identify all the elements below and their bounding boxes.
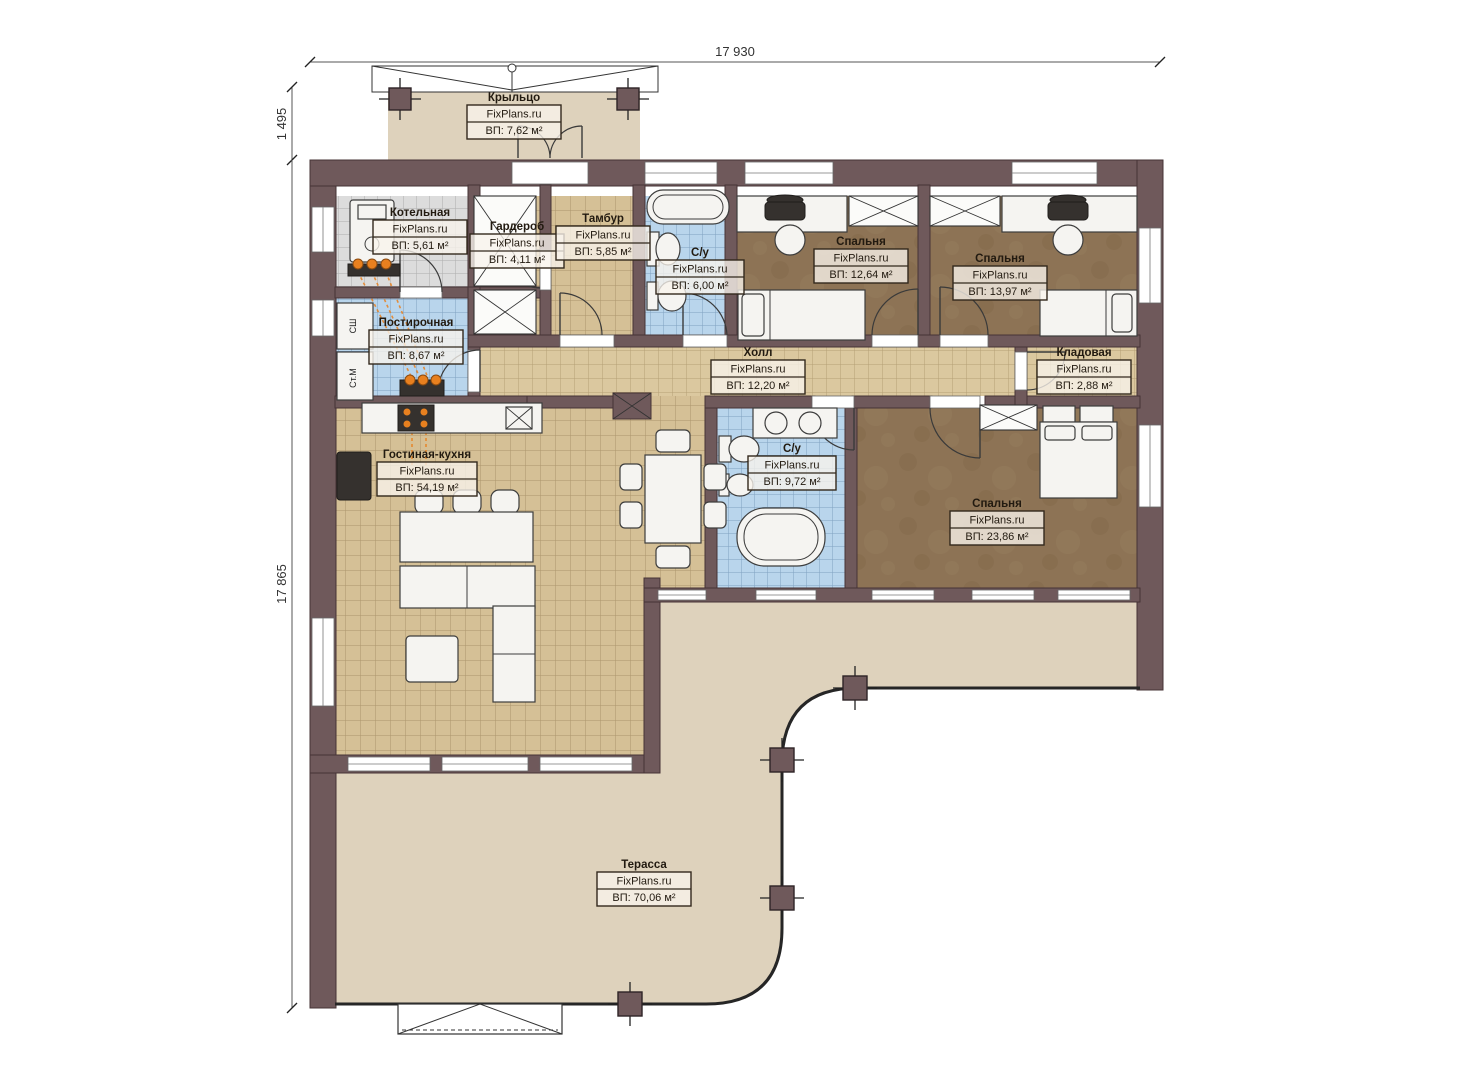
room-area: ВП: 4,11 м² [489, 254, 546, 266]
desk-chair-2 [1053, 225, 1083, 255]
bathtub-2 [737, 508, 825, 566]
room-area: ВП: 5,85 м² [574, 246, 631, 258]
window-top-1 [645, 162, 717, 184]
room-name: Тамбур [582, 213, 624, 225]
watermark: FixPlans.ru [730, 364, 785, 376]
washer-label: Ст.М [348, 368, 358, 388]
watermark: FixPlans.ru [972, 270, 1027, 282]
watermark: FixPlans.ru [1056, 364, 1111, 376]
window-terrace-4 [972, 590, 1034, 600]
window-left-1 [312, 207, 334, 252]
window-living-south-3 [540, 757, 632, 771]
watermark: FixPlans.ru [969, 515, 1024, 527]
bedroom1-wardrobe [849, 196, 918, 226]
bathtub-1 [647, 190, 729, 224]
entry-door-gap [512, 162, 588, 184]
window-top-2 [745, 162, 833, 184]
kitchen-counter [362, 403, 542, 433]
watermark: FixPlans.ru [489, 238, 544, 250]
watermark: FixPlans.ru [392, 224, 447, 236]
window-terrace-1 [658, 590, 706, 600]
desk-chair-1 [775, 225, 805, 255]
wall-p7 [918, 185, 930, 347]
room-area: ВП: 6,00 м² [671, 280, 728, 292]
dimension-porch-height: 1 495 [274, 108, 289, 141]
bed-2 [1040, 290, 1137, 336]
room-area: ВП: 12,20 м² [726, 380, 790, 392]
fridge [337, 452, 371, 500]
window-left-2 [312, 300, 334, 336]
window-terrace-5 [1058, 590, 1130, 600]
porch-roof [372, 64, 658, 92]
floor-plan-page: СШ Ст.М [0, 0, 1473, 1080]
bedroom3-wardrobe [980, 405, 1037, 430]
room-name: Гардероб [490, 221, 544, 233]
room-name: Постирочная [379, 317, 454, 329]
window-terrace-3 [872, 590, 934, 600]
watermark: FixPlans.ru [575, 230, 630, 242]
room-area: ВП: 70,06 м² [612, 892, 676, 904]
dryer-label: СШ [348, 319, 358, 334]
wall-living-right [644, 578, 660, 773]
watermark: FixPlans.ru [764, 460, 819, 472]
room-name: Кладовая [1056, 347, 1111, 359]
window-living-south-2 [442, 757, 528, 771]
watermark: FixPlans.ru [833, 253, 888, 265]
wall-bath2-right [845, 408, 857, 588]
window-left-3 [312, 618, 334, 706]
nightstand-1 [1043, 406, 1075, 422]
room-name: С/у [691, 247, 710, 259]
dimension-height: 17 865 [274, 564, 289, 604]
window-terrace-2 [756, 590, 816, 600]
room-area: ВП: 13,97 м² [968, 286, 1032, 298]
hall-living-opening-floor [651, 396, 705, 410]
dimension-width: 17 930 [715, 44, 755, 59]
room-label-laundry: Постирочная FixPlans.ru ВП: 8,67 м² [369, 317, 463, 364]
terrace-steps [398, 1004, 562, 1034]
double-sink-counter [753, 408, 837, 438]
room-area: ВП: 12,64 м² [829, 269, 893, 281]
washing-machine: Ст.М [337, 352, 373, 400]
room-area: ВП: 9,72 м² [763, 476, 820, 488]
dryer-cabinet: СШ [337, 303, 373, 349]
room-area: ВП: 23,86 м² [965, 531, 1029, 543]
room-area: ВП: 2,88 м² [1055, 380, 1112, 392]
bedroom2-wardrobe [930, 196, 1000, 226]
room-area: ВП: 5,61 м² [391, 240, 448, 252]
room-area: ВП: 7,62 м² [485, 125, 542, 137]
room-name: С/у [783, 443, 802, 455]
wall-hall-bottom-b [705, 396, 815, 408]
window-right-1 [1139, 228, 1161, 303]
room-name: Спальня [972, 498, 1022, 510]
room-name: Гостиная-кухня [383, 449, 471, 461]
window-top-3 [1012, 162, 1097, 184]
floor-plan-drawing: СШ Ст.М [0, 0, 1473, 1080]
watermark: FixPlans.ru [486, 109, 541, 121]
room-name: Крыльцо [488, 92, 540, 104]
nightstand-2 [1080, 406, 1113, 422]
wall-hall-bottom-c [852, 396, 932, 408]
bed-1 [738, 290, 865, 340]
watermark: FixPlans.ru [399, 466, 454, 478]
room-area: ВП: 54,19 м² [395, 482, 459, 494]
watermark: FixPlans.ru [388, 334, 443, 346]
window-right-2 [1139, 425, 1161, 507]
room-name: Холл [744, 347, 773, 359]
room-name: Котельная [390, 207, 450, 219]
room-name: Спальня [836, 236, 886, 248]
room-label-living-kitchen: Гостиная-кухня FixPlans.ru ВП: 54,19 м² [377, 449, 477, 496]
room-name: Спальня [975, 253, 1025, 265]
watermark: FixPlans.ru [672, 264, 727, 276]
wall-p5 [633, 185, 645, 347]
laundry-manifold [400, 375, 444, 396]
double-bed [1040, 422, 1117, 498]
room-area: ВП: 8,67 м² [387, 350, 444, 362]
watermark: FixPlans.ru [616, 876, 671, 888]
wall-bath2-left [705, 408, 717, 588]
window-living-south-1 [348, 757, 430, 771]
coffee-table [406, 636, 458, 682]
kitchen-island [400, 490, 533, 562]
hall-pillar [613, 393, 651, 419]
wall-left [310, 160, 336, 1008]
room-name: Терасса [621, 859, 667, 871]
